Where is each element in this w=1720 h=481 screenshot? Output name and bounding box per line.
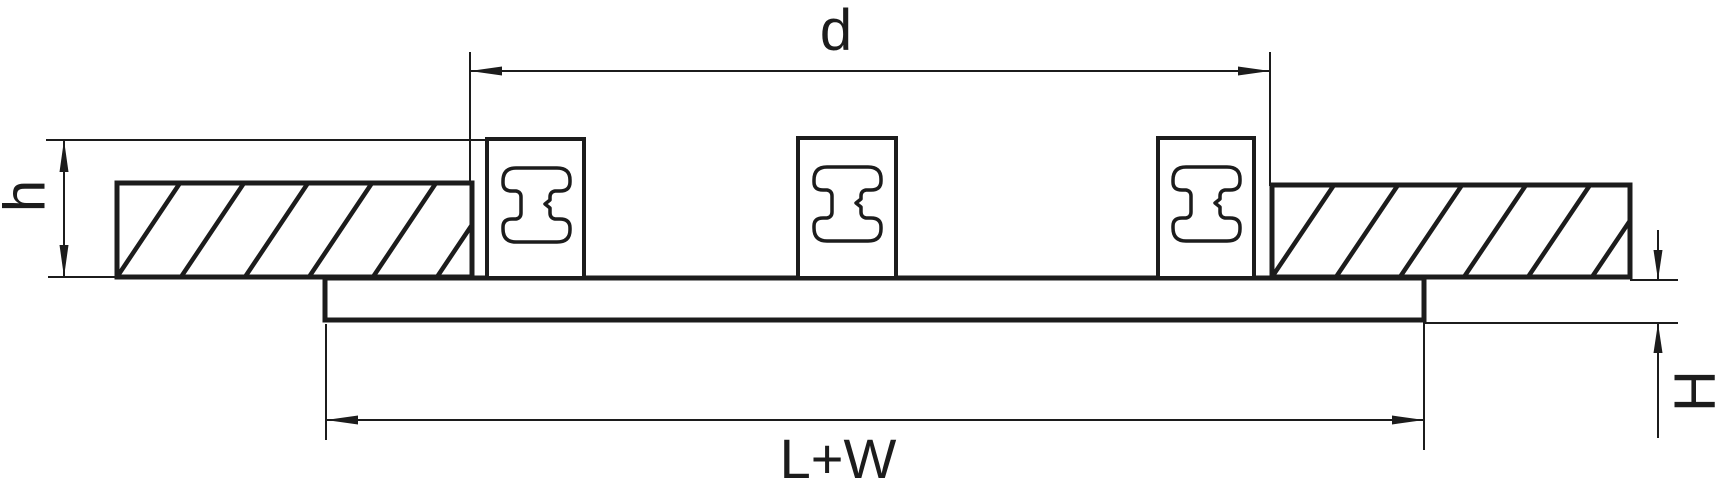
mounting-clip-1: [487, 139, 584, 278]
mounting-clip-2: [798, 138, 896, 278]
left-flange-section: [117, 183, 500, 277]
arrow-left-icon: [470, 67, 502, 76]
arrow-up-icon: [1654, 323, 1663, 353]
dimension-h-label: h: [0, 180, 57, 212]
mounting-plate-body: [325, 278, 1424, 320]
arrow-up-icon: [60, 140, 69, 172]
drawing-canvas: d h H L+W: [0, 0, 1720, 481]
arrow-right-icon: [1238, 67, 1270, 76]
arrow-down-icon: [60, 245, 69, 277]
dimension-LW: L+W: [326, 322, 1424, 481]
technical-drawing: d h H L+W: [0, 0, 1720, 481]
right-flange-section: [1272, 185, 1654, 277]
mounting-plate: [325, 278, 1424, 320]
dimension-d-label: d: [820, 0, 852, 63]
dimension-H-label: H: [1662, 370, 1720, 412]
dimension-LW-label: L+W: [780, 427, 897, 481]
arrow-down-icon: [1654, 250, 1663, 280]
mounting-clip-3: [1158, 138, 1254, 278]
arrow-left-icon: [326, 416, 358, 425]
arrow-right-icon: [1392, 416, 1424, 425]
